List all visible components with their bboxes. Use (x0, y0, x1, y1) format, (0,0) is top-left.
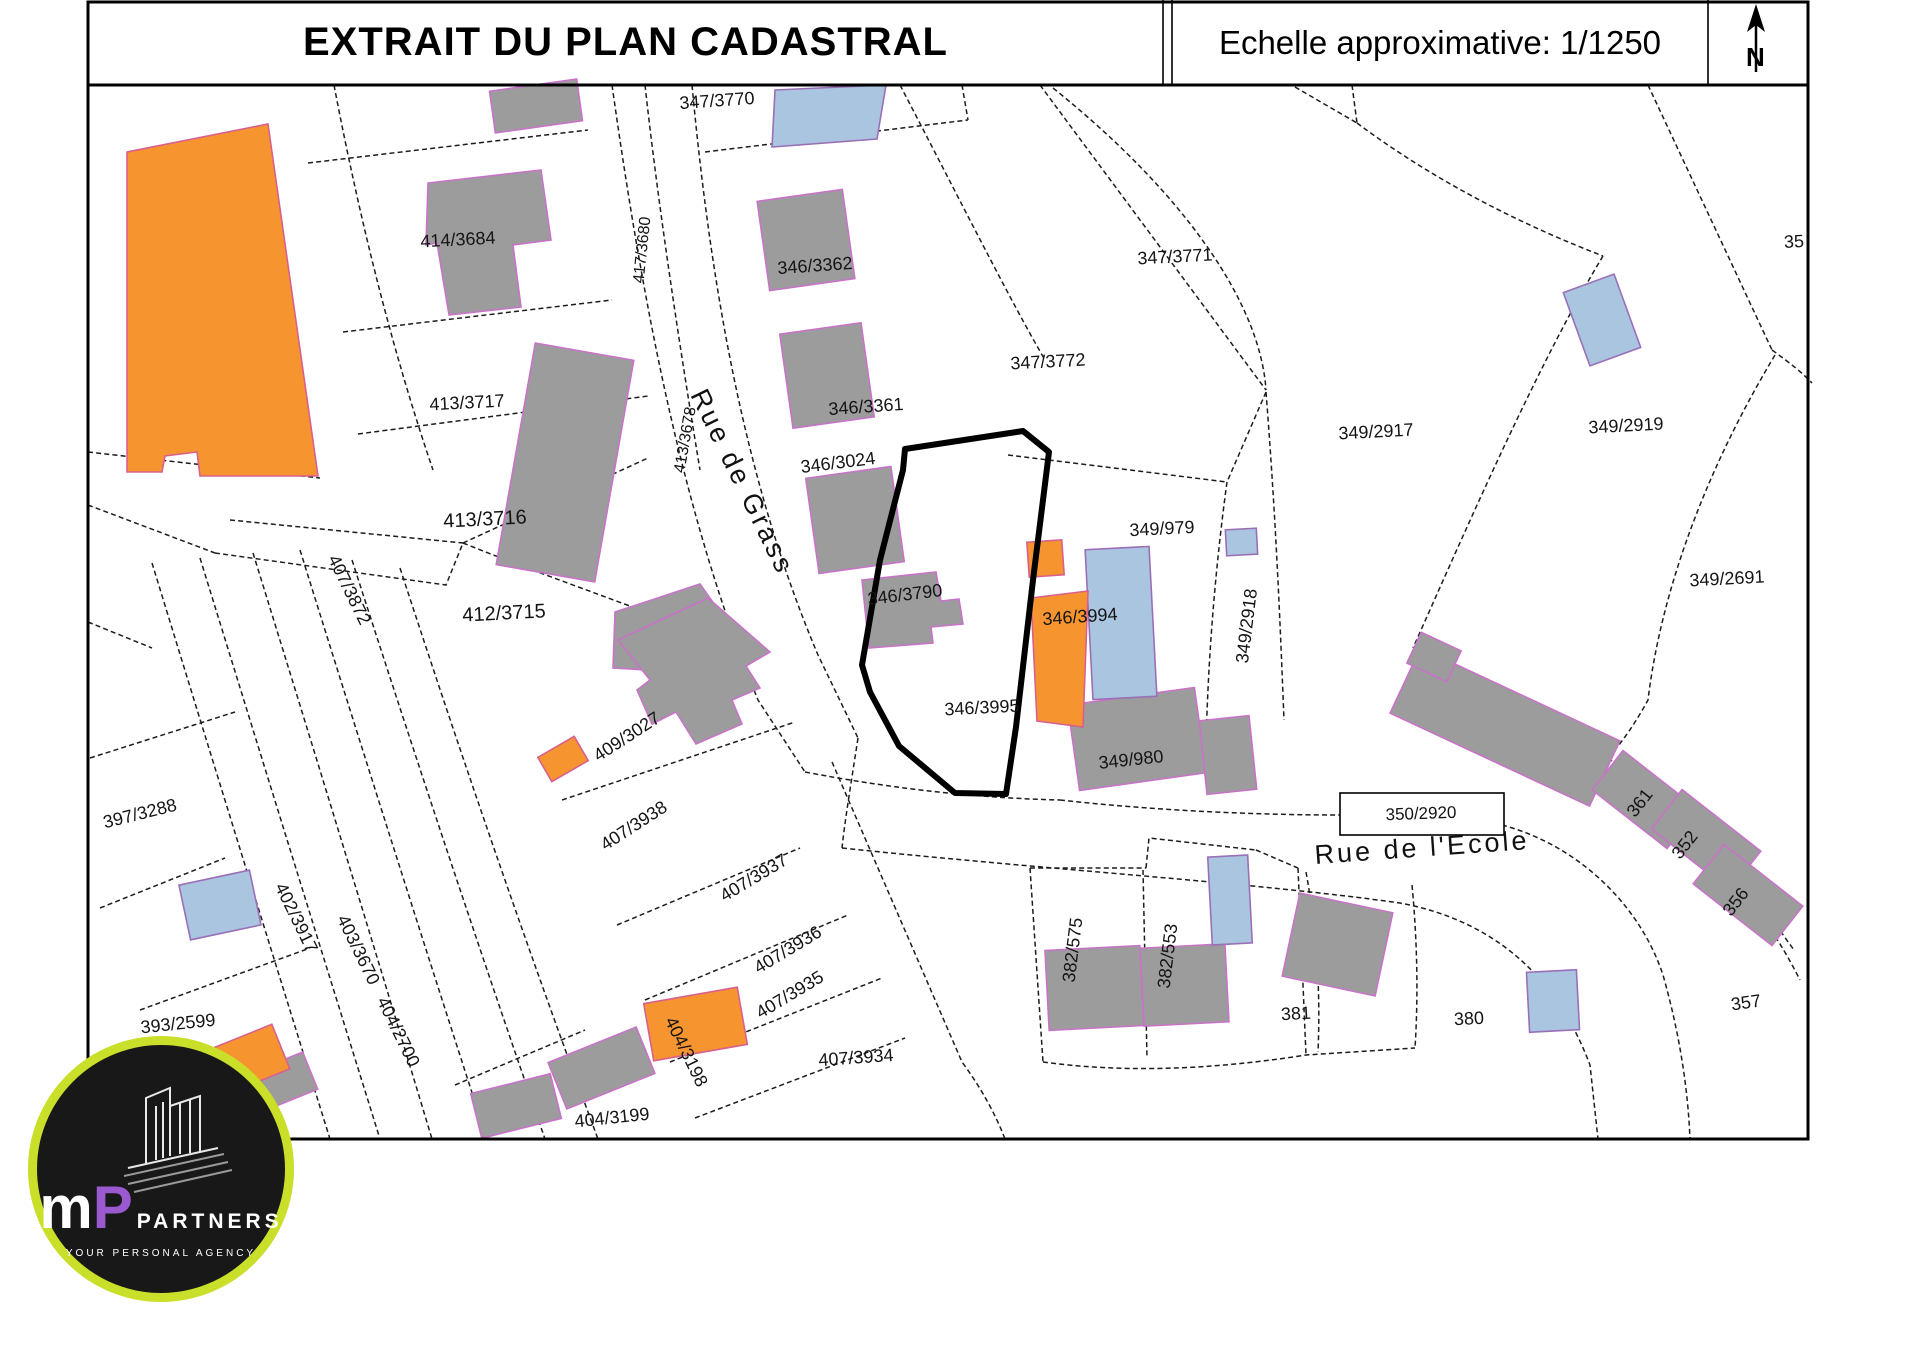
logo-building-icon (28, 1036, 294, 1302)
building-gray (490, 79, 583, 133)
parcel-label: 349/2919 (1588, 414, 1664, 439)
building-blue (1225, 528, 1257, 556)
building-gray (1199, 716, 1256, 795)
parcel-label: 380 (1453, 1008, 1484, 1031)
parcel-label: 414/3684 (420, 228, 496, 253)
building-gray (1282, 893, 1393, 996)
logo-mp-partners: mPPARTNERS YOUR PERSONAL AGENCY (28, 1036, 294, 1302)
building-blue (179, 870, 261, 940)
parcel-label: 412/3715 (462, 600, 547, 627)
parcel-label: 347/3771 (1137, 245, 1213, 270)
parcel-label: 381 (1280, 1003, 1311, 1026)
logo-tagline: YOUR PERSONAL AGENCY (28, 1248, 294, 1259)
parcel-label: 413/3717 (429, 391, 505, 416)
parcel-label: 349/2917 (1338, 420, 1414, 445)
building-blue (1563, 274, 1640, 366)
building-gray (1045, 946, 1144, 1031)
logo-brand: PARTNERS (137, 1210, 283, 1233)
building-gray (496, 343, 634, 582)
document-title: EXTRAIT DU PLAN CADASTRAL (88, 0, 1163, 85)
north-letter: N (1746, 42, 1765, 72)
logo-letter-m: m (39, 1174, 92, 1241)
building-orange (127, 124, 318, 476)
parcel-label: 357 (1730, 991, 1763, 1016)
parcel-label: 35 (1783, 231, 1804, 253)
cadastral-plan-document: N EXTRAIT DU PLAN CADASTRAL Echelle appr… (0, 0, 1919, 1351)
logo-letter-p: P (93, 1174, 133, 1241)
parcel-label: 346/3995 (944, 696, 1020, 721)
building-gray (1068, 688, 1207, 791)
building-orange (538, 736, 588, 781)
parcel-label: 349/2691 (1689, 567, 1765, 592)
logo-wordmark: mPPARTNERS (28, 1178, 294, 1254)
parcel-label: 349/979 (1129, 517, 1195, 541)
building-gray (471, 1074, 562, 1138)
building-blue (1208, 855, 1253, 945)
parcel-label: 347/3772 (1010, 350, 1086, 375)
north-arrow-icon: N (1746, 4, 1765, 72)
parcel-label: 350/2920 (1385, 803, 1457, 825)
building-blue (772, 85, 886, 147)
parcel-label: 413/3716 (443, 506, 528, 533)
scale-label: Echelle approximative: 1/1250 (1175, 0, 1705, 85)
building-blue (1526, 970, 1579, 1033)
